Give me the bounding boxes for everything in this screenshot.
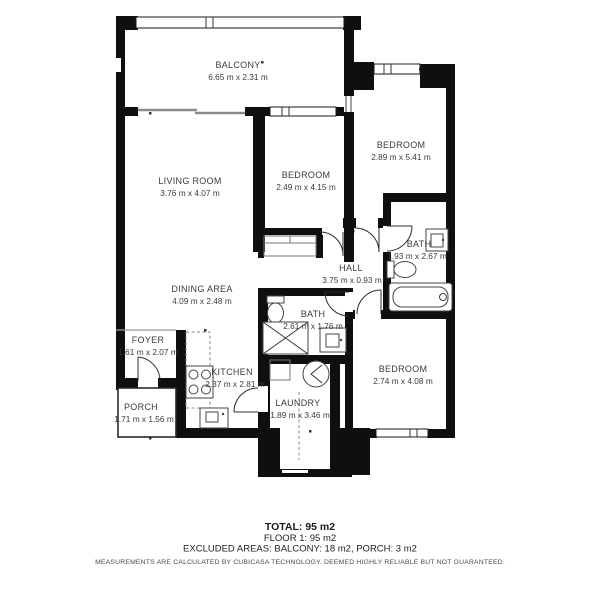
room-label-bedroom-mid: BEDROOM bbox=[282, 170, 331, 180]
bedroom-right-window bbox=[374, 64, 420, 74]
balcony-top-window bbox=[136, 17, 344, 28]
bedroom-mid-door bbox=[320, 232, 343, 256]
room-dims-bedroom-right: 2.89 m x 5.41 m bbox=[371, 152, 431, 162]
room-label-hall: HALL bbox=[339, 263, 363, 273]
kitchen-door bbox=[234, 388, 258, 412]
room-dims-hall: 3.75 m x 0.93 m bbox=[322, 275, 382, 285]
washing-machine-icon bbox=[303, 361, 329, 387]
room-dims-porch: 1.71 m x 1.56 m bbox=[114, 414, 174, 424]
room-label-balcony: BALCONY bbox=[215, 60, 260, 70]
room-dims-laundry: 1.89 m x 3.46 m bbox=[270, 410, 330, 420]
summary-floor: FLOOR 1: 95 m2 bbox=[264, 533, 336, 544]
room-dims-foyer: 1.61 m x 2.07 m bbox=[118, 347, 178, 357]
bedroom-right-door bbox=[355, 228, 379, 252]
toilet-icon bbox=[267, 296, 284, 323]
room-label-bath-center: BATH bbox=[301, 309, 326, 319]
room-dims-bedroom-mid: 2.49 m x 4.15 m bbox=[276, 182, 336, 192]
summary-total: TOTAL: 95 m2 bbox=[265, 521, 335, 533]
summary-block: TOTAL: 95 m2 FLOOR 1: 95 m2 EXCLUDED ARE… bbox=[95, 521, 505, 566]
summary-excluded: EXCLUDED AREAS: BALCONY: 18 m2, PORCH: 3… bbox=[183, 544, 417, 555]
room-label-porch: PORCH bbox=[124, 402, 158, 412]
room-label-dining: DINING AREA bbox=[171, 284, 232, 294]
entry-door bbox=[138, 357, 160, 381]
fixtures bbox=[186, 229, 452, 460]
room-label-living-room: LIVING ROOM bbox=[158, 176, 221, 186]
bedroom-mid-balcony-window bbox=[270, 107, 336, 116]
kitchen-sink-icon bbox=[200, 408, 228, 428]
floorplan-svg: BALCONY 6.65 m x 2.31 m LIVING ROOM 3.76… bbox=[0, 0, 600, 600]
room-label-bedroom-right: BEDROOM bbox=[377, 140, 426, 150]
room-label-kitchen: KITCHEN bbox=[211, 367, 253, 377]
living-balcony-slider bbox=[138, 110, 245, 113]
room-dims-balcony: 6.65 m x 2.31 m bbox=[208, 72, 268, 82]
room-dims-bedroom-bottom: 2.74 m x 4.08 m bbox=[373, 376, 433, 386]
room-label-bath-right: BATH bbox=[407, 239, 432, 249]
room-dims-kitchen: 2.37 m x 2.81 m bbox=[205, 379, 265, 389]
wardrobe bbox=[264, 236, 316, 256]
summary-disclaimer: MEASUREMENTS ARE CALCULATED BY CUBICASA … bbox=[95, 559, 505, 566]
bathtub-icon bbox=[389, 283, 452, 311]
room-dims-bath-right: 1.93 m x 2.67 m bbox=[387, 251, 447, 261]
sink-icon bbox=[320, 328, 346, 352]
room-dims-dining: 4.09 m x 2.48 m bbox=[172, 296, 232, 306]
toilet-icon bbox=[387, 261, 416, 278]
room-label-foyer: FOYER bbox=[132, 335, 165, 345]
room-label-bedroom-bottom: BEDROOM bbox=[379, 364, 428, 374]
room-dims-bath-center: 2.61 m x 1.76 m bbox=[283, 321, 343, 331]
floorplan-screenshot: BALCONY 6.65 m x 2.31 m LIVING ROOM 3.76… bbox=[0, 0, 600, 600]
bedroom-bottom-window bbox=[376, 429, 428, 437]
room-label-laundry: LAUNDRY bbox=[276, 398, 321, 408]
porch-outline bbox=[118, 388, 176, 437]
room-dims-living-room: 3.76 m x 4.07 m bbox=[160, 188, 220, 198]
